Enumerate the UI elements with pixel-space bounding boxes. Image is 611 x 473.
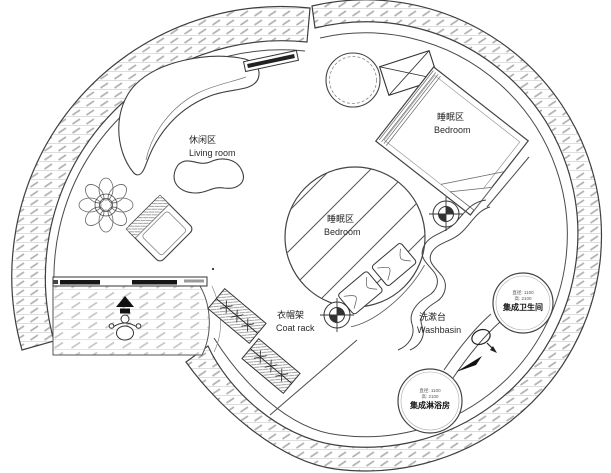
plant-icon (79, 178, 133, 232)
label-shower-dim1: 直径: 1100 (419, 387, 441, 393)
floor-dot (212, 268, 214, 270)
label-bathroom-dim2: 高: 2100 (514, 295, 532, 302)
coffee-table (174, 159, 243, 193)
entrance-corridor (53, 277, 221, 355)
label-living-en: Living room (189, 148, 236, 158)
label-shower-name: 集成淋浴房 (409, 400, 450, 410)
label-washbasin-zh: 洗漱台 (419, 311, 446, 322)
label-bedroom-center-zh: 睡眠区 (327, 213, 354, 224)
faucet-icon (469, 327, 497, 353)
wall-shelf (244, 50, 299, 71)
label-bedroom-center-en: Bedroom (324, 227, 361, 237)
label-bathroom-name: 集成卫生间 (502, 302, 543, 312)
pod-connector-arcs (444, 314, 500, 378)
coat-rack-1 (208, 289, 266, 344)
armchair (126, 195, 194, 263)
label-coat-rack-zh: 衣帽架 (277, 309, 304, 320)
label-bathroom-dim1: 直径: 1100 (512, 289, 534, 295)
floor-plan-canvas: 休闲区 Living room 睡眠区 Bedroom 睡眠区 Bedroom … (0, 0, 611, 473)
label-coat-rack-en: Coat rack (276, 323, 315, 333)
round-table (326, 53, 380, 107)
label-shower-dim2: 高: 2100 (421, 393, 439, 400)
corridor-floor (53, 286, 209, 355)
label-washbasin-en: Washbasin (417, 325, 461, 335)
direction-arrow-icon (456, 356, 482, 372)
floor-plan-page: 休闲区 Living room 睡眠区 Bedroom 睡眠区 Bedroom … (0, 0, 611, 473)
label-bedroom-upper-en: Bedroom (434, 125, 471, 135)
label-bedroom-upper-zh: 睡眠区 (437, 111, 464, 122)
label-living-zh: 休闲区 (189, 134, 216, 145)
entrance-door-wall (53, 277, 207, 286)
